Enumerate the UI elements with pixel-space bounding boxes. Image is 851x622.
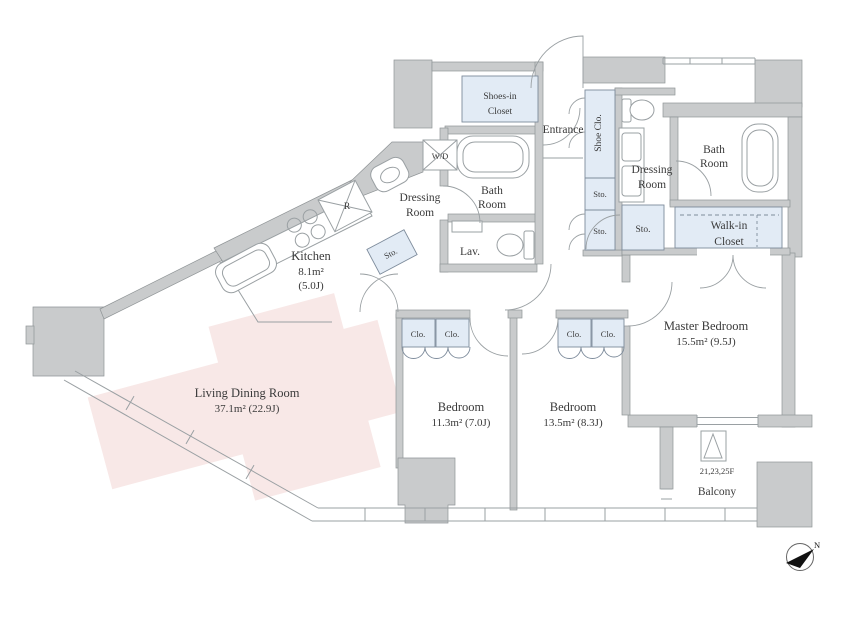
master-bedroom-area: 15.5m² (9.5J)	[676, 336, 736, 348]
kitchen-area-m: 8.1m²	[298, 266, 324, 278]
dressing1-label-2: Room	[406, 207, 434, 219]
refrigerator-label: R	[344, 202, 351, 212]
clo-label-4: Clo.	[601, 329, 615, 339]
walk-in-closet-label-2: Closet	[714, 236, 744, 248]
bedroom1-label: Bedroom	[438, 400, 485, 414]
clo-label-3: Clo.	[567, 329, 581, 339]
sto-label-dressing2: Sto.	[635, 225, 650, 235]
wall-top-block	[394, 60, 432, 128]
dressing2-label-1: Dressing	[632, 164, 673, 176]
lav-label: Lav.	[460, 246, 480, 258]
shoes-in-closet-label-1: Shoes-in	[483, 92, 517, 102]
bedroom1-area: 11.3m² (7.0J)	[432, 417, 491, 429]
wall-balcony-left	[660, 427, 673, 489]
master-bedroom-label: Master Bedroom	[664, 319, 749, 333]
dressing1-label-1: Dressing	[400, 192, 441, 204]
wall-topright-block	[755, 60, 802, 107]
wall-right-lower	[782, 253, 795, 427]
entrance-label: Entrance	[543, 124, 584, 136]
north-label: N	[814, 540, 820, 550]
wall-pillar-bedroom1	[398, 458, 455, 523]
shoes-in-closet-label-2: Closet	[488, 107, 513, 117]
bath2-label-1: Bath	[703, 144, 725, 156]
wall-pillar-left	[33, 307, 104, 376]
kitchen-label: Kitchen	[291, 249, 331, 263]
wall-balcony-pillar	[757, 462, 812, 527]
bath2-label-2: Room	[700, 158, 728, 170]
sto-label-strip2: Sto.	[593, 226, 606, 236]
bedroom2-area: 13.5m² (8.3J)	[543, 417, 603, 429]
kitchen-area-j: (5.0J)	[298, 280, 324, 292]
living-room-label: Living Dining Room	[195, 386, 300, 400]
balcony-hatch-icon	[701, 431, 726, 461]
wd-label: W/D	[432, 151, 449, 161]
clo-label-1: Clo.	[411, 329, 425, 339]
walk-in-closet-label-1: Walk-in	[711, 220, 748, 232]
sto-label-strip1: Sto.	[593, 189, 606, 199]
balcony-label: Balcony	[698, 486, 737, 498]
clo-label-2: Clo.	[445, 329, 459, 339]
wall-right-upper	[788, 117, 802, 257]
shoe-closet-label: Shoe Clo.	[594, 114, 604, 151]
bathtub1-icon	[457, 136, 529, 178]
dressing2-label-2: Room	[638, 179, 666, 191]
toilet2-icon	[622, 99, 654, 122]
balcony-floors-label: 21,23,25F	[700, 466, 735, 476]
living-room-area: 37.1m² (22.9J)	[215, 403, 280, 415]
bathtub2-icon	[742, 124, 778, 192]
lav-shelf	[452, 221, 482, 232]
floor-plan: Living Dining Room 37.1m² (22.9J) Kitche…	[0, 0, 851, 622]
bath1-label-2: Room	[478, 199, 506, 211]
bath1-label-1: Bath	[481, 185, 503, 197]
bedroom2-label: Bedroom	[550, 400, 597, 414]
